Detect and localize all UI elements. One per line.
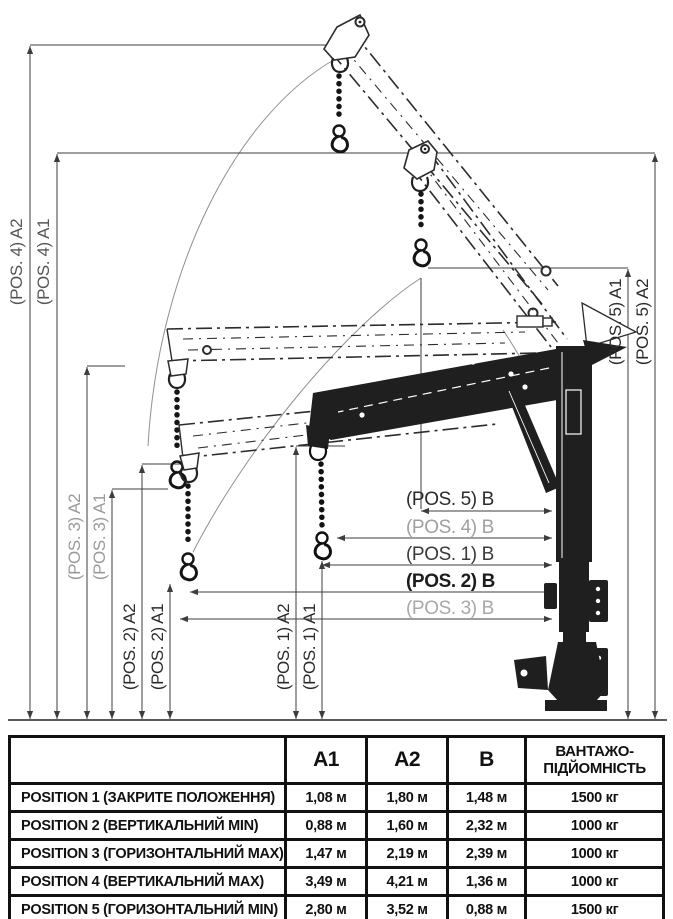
header-capacity: ВАНТАЖО- ПІДЙОМНІСТЬ (526, 737, 664, 784)
value-b: 1,48 м (447, 784, 525, 812)
boom-pos4-vertical-max (324, 15, 558, 318)
value-a2: 2,19 м (367, 840, 447, 868)
row-label: POSITION 5 (ГОРИЗОНТАЛЬНИЙ MIN) (10, 896, 286, 919)
capacity-header-line1: ВАНТАЖО- (527, 743, 662, 760)
table-row-position1: POSITION 1 (ЗАКРИТЕ ПОЛОЖЕННЯ) 1,08 м 1,… (10, 784, 664, 812)
crane-base (548, 642, 606, 701)
table-row-position3: POSITION 3 (ГОРИЗОНТАЛЬНИЙ MAX) 1,47 м 2… (10, 840, 664, 868)
hook-icon-pos5 (414, 240, 429, 266)
base-plate (545, 700, 607, 711)
row-label: POSITION 2 (ВЕРТИКАЛЬНИЙ MIN) (10, 812, 286, 840)
table-header-row: A1 A2 B ВАНТАЖО- ПІДЙОМНІСТЬ (10, 737, 664, 784)
label-pos5-b: (POS. 5) B (406, 489, 494, 510)
row-label: POSITION 4 (ВЕРТИКАЛЬНИЙ MAX) (10, 868, 286, 896)
label-pos1-b: (POS. 1) B (406, 544, 494, 565)
hook-icon-pos4 (332, 126, 347, 152)
value-a1: 2,80 м (285, 896, 367, 919)
row-label: POSITION 3 (ГОРИЗОНТАЛЬНИЙ MAX) (10, 840, 286, 868)
hook-icon-pos1 (315, 533, 330, 559)
label-pos3-a1: (POS. 3) A1 (90, 494, 109, 580)
header-a1: A1 (285, 737, 367, 784)
header-empty (10, 737, 286, 784)
value-b: 2,39 м (447, 840, 525, 868)
value-b: 2,32 м (447, 812, 525, 840)
table-row-position4: POSITION 4 (ВЕРТИКАЛЬНИЙ MAX) 3,49 м 4,2… (10, 868, 664, 896)
capacity-header-line2: ПІДЙОМНІСТЬ (527, 760, 662, 777)
label-pos5-a2: (POS. 5) A2 (633, 279, 652, 365)
table-row-position5: POSITION 5 (ГОРИЗОНТАЛЬНИЙ MIN) 2,80 м 3… (10, 896, 664, 919)
label-pos3-b: (POS. 3) B (406, 598, 494, 619)
label-pos2-a2: (POS. 2) A2 (120, 604, 139, 690)
hook-icon-pos2 (181, 554, 196, 580)
value-b: 0,88 м (447, 896, 525, 919)
value-b: 1,36 м (447, 868, 525, 896)
value-a2: 4,21 м (367, 868, 447, 896)
value-a2: 3,52 м (367, 896, 447, 919)
header-b: B (447, 737, 525, 784)
chain-pos1 (321, 464, 322, 526)
value-capacity: 1500 кг (526, 784, 664, 812)
label-pos1-a2: (POS. 1) A2 (274, 604, 293, 690)
label-pos4-b: (POS. 4) B (406, 517, 494, 538)
crane-diagram: (POS. 4) A2 (POS. 4) A1 (POS. 3) A2 (POS… (0, 0, 673, 732)
table-row-position2: POSITION 2 (ВЕРТИКАЛЬНИЙ MIN) 0,88 м 1,6… (10, 812, 664, 840)
value-a1: 1,08 м (285, 784, 367, 812)
value-a2: 1,80 м (367, 784, 447, 812)
header-a2: A2 (367, 737, 447, 784)
crane-mast (556, 346, 592, 562)
label-pos1-a1: (POS. 1) A1 (300, 604, 319, 690)
label-pos2-a1: (POS. 2) A1 (148, 604, 167, 690)
label-pos2-b: (POS. 2) B (406, 571, 495, 592)
crane-spec-sheet: (POS. 4) A2 (POS. 4) A1 (POS. 3) A2 (POS… (0, 0, 673, 919)
boom-pos1-closed (309, 349, 589, 440)
value-a1: 3,49 м (285, 868, 367, 896)
row-label: POSITION 1 (ЗАКРИТЕ ПОЛОЖЕННЯ) (10, 784, 286, 812)
label-pos5-a1: (POS. 5) A1 (606, 279, 625, 365)
motion-arcs (148, 58, 529, 552)
label-pos3-a2: (POS. 3) A2 (65, 494, 84, 580)
value-a1: 1,47 м (285, 840, 367, 868)
value-a1: 0,88 м (285, 812, 367, 840)
value-capacity: 1000 кг (526, 840, 664, 868)
spec-table: A1 A2 B ВАНТАЖО- ПІДЙОМНІСТЬ POSITION 1 … (8, 735, 665, 919)
value-capacity: 1000 кг (526, 868, 664, 896)
tow-fitting (514, 656, 548, 690)
value-capacity: 1000 кг (526, 812, 664, 840)
value-capacity: 1500 кг (526, 896, 664, 919)
label-pos4-a2: (POS. 4) A2 (7, 219, 26, 305)
value-a2: 1,60 м (367, 812, 447, 840)
label-pos4-a1: (POS. 4) A1 (34, 219, 53, 305)
